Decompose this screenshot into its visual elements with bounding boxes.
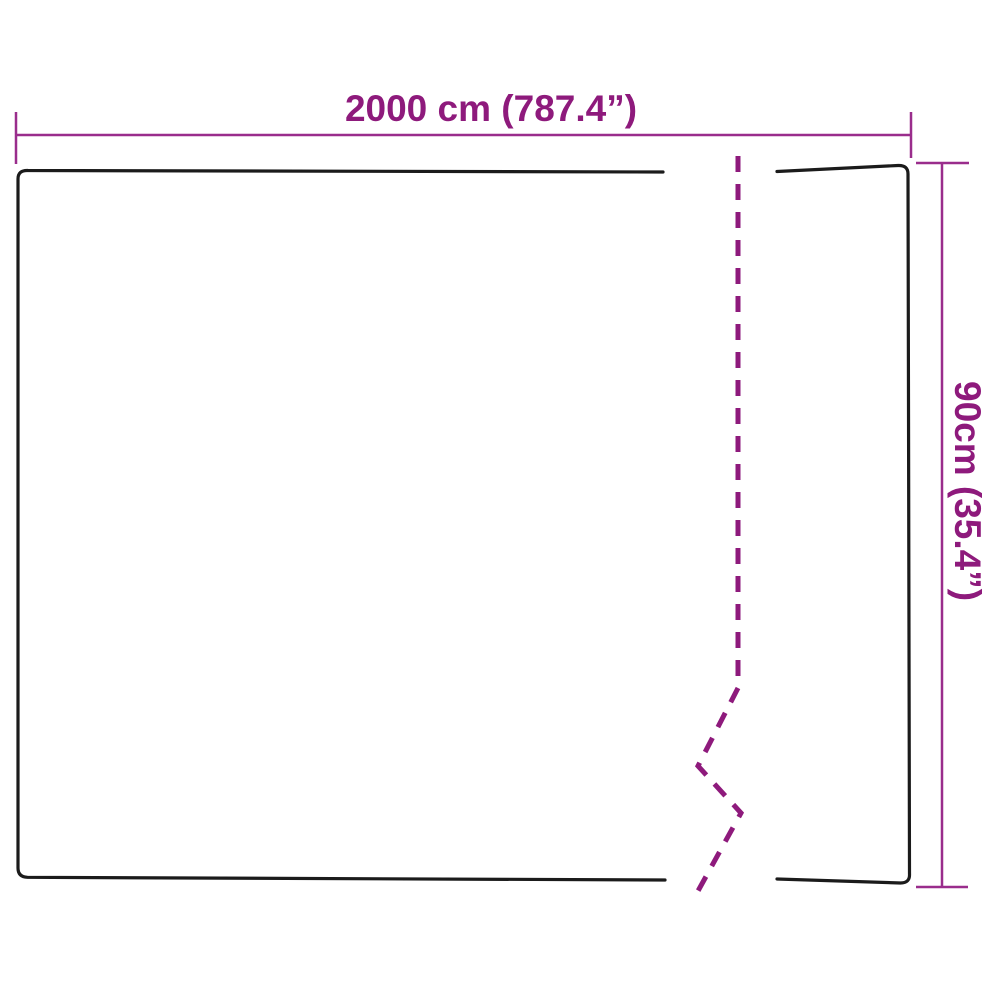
sheet-outline-right [777,165,910,883]
dimension-diagram: 2000 cm (787.4”) 90cm (35.4”) [0,0,1000,1000]
width-dimension-label: 2000 cm (787.4”) [0,86,982,132]
sheet-outline-left [18,170,665,880]
height-dimension-label: 90cm (35.4”) [942,0,992,982]
diagram-drawing [0,0,1000,1000]
break-line [698,156,741,891]
